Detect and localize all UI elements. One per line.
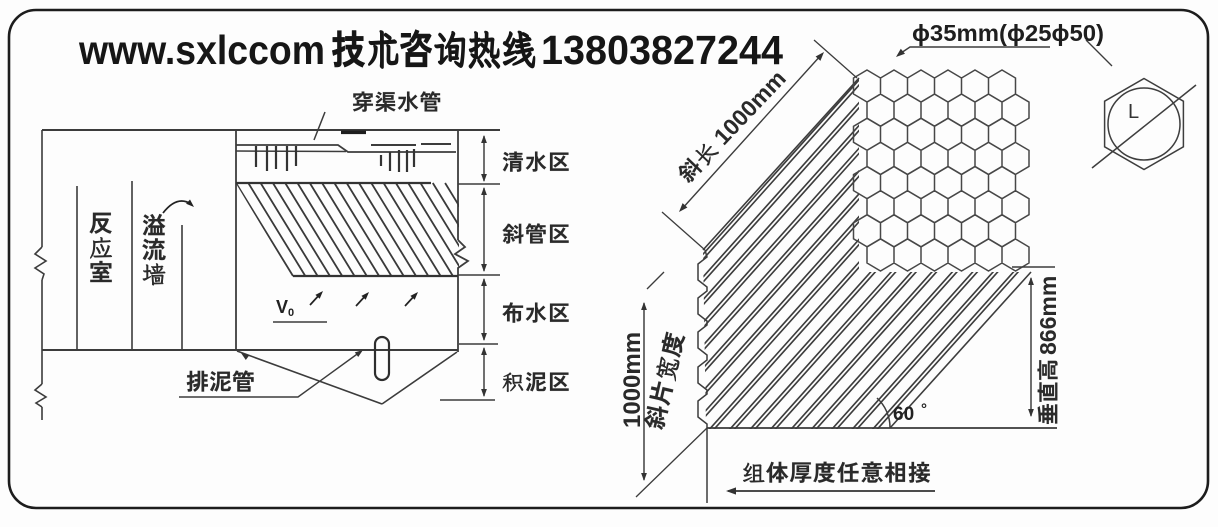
svg-text:°: ° xyxy=(921,401,927,418)
svg-text:60: 60 xyxy=(893,404,914,425)
svg-text:www.sxlccom: www.sxlccom xyxy=(78,27,325,73)
svg-text:1000mm: 1000mm xyxy=(619,332,646,428)
svg-text:V: V xyxy=(276,297,288,317)
svg-text:866mm: 866mm xyxy=(1035,276,1061,355)
svg-text:L: L xyxy=(1128,101,1139,123)
svg-text:13803827244: 13803827244 xyxy=(541,27,783,73)
svg-text:0: 0 xyxy=(288,307,294,319)
svg-text:ϕ35mm(ϕ25ϕ50): ϕ35mm(ϕ25ϕ50) xyxy=(912,20,1104,46)
